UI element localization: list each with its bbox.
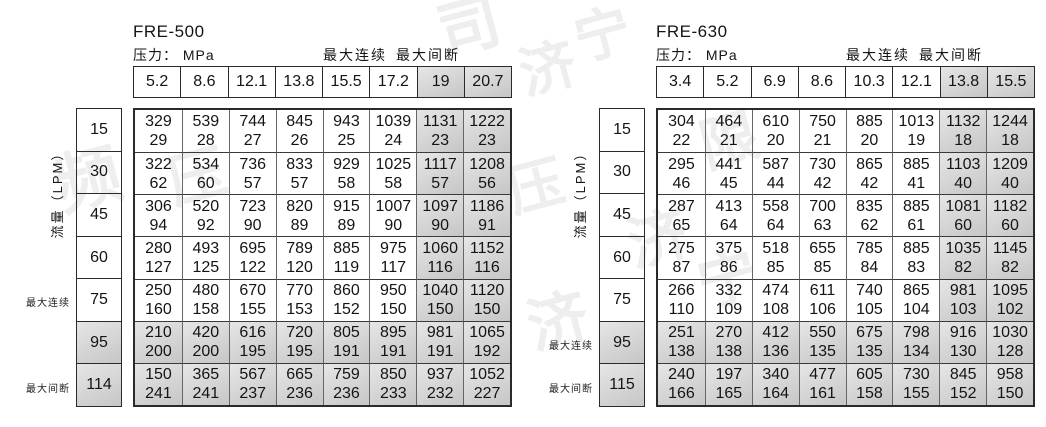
pressure-drop-value: 152 bbox=[333, 300, 360, 319]
pressure-drop-value: 86 bbox=[720, 258, 738, 277]
data-cell: 1152116 bbox=[463, 236, 510, 278]
pressure-unit-label: 压力： MPa bbox=[656, 45, 738, 65]
flow-value: 916 bbox=[950, 323, 977, 342]
pressure-drop-value: 64 bbox=[720, 216, 738, 235]
pressure-header-cell: 6.9 bbox=[751, 67, 798, 97]
data-cell: 84526 bbox=[276, 110, 323, 152]
flow-value: 865 bbox=[903, 281, 930, 300]
flow-value: 723 bbox=[239, 197, 266, 216]
data-cell: 100790 bbox=[369, 194, 416, 236]
data-cell: 950150 bbox=[369, 279, 416, 321]
data-cell: 88561 bbox=[892, 194, 939, 236]
flow-value: 1035 bbox=[945, 239, 981, 258]
flow-value: 1186 bbox=[470, 197, 504, 216]
flow-value: 1120 bbox=[470, 281, 504, 300]
flow-value: 820 bbox=[286, 197, 313, 216]
data-cell: 150241 bbox=[135, 363, 182, 405]
data-cell: 124418 bbox=[986, 110, 1033, 152]
data-cell: 65585 bbox=[799, 236, 846, 278]
data-cell: 916130 bbox=[939, 321, 986, 363]
pressure-drop-value: 94 bbox=[150, 216, 168, 235]
data-cell: 88583 bbox=[892, 236, 939, 278]
pressure-drop-value: 236 bbox=[286, 384, 313, 403]
data-cell: 611106 bbox=[799, 279, 846, 321]
pressure-drop-value: 40 bbox=[954, 174, 972, 193]
pressure-drop-value: 233 bbox=[380, 384, 407, 403]
pressure-drop-value: 44 bbox=[767, 174, 785, 193]
data-cell: 78584 bbox=[846, 236, 893, 278]
flow-value: 915 bbox=[333, 197, 360, 216]
pressure-drop-value: 119 bbox=[334, 258, 360, 277]
data-cell: 83357 bbox=[276, 152, 323, 194]
pressure-drop-value: 19 bbox=[907, 131, 925, 150]
flow-value: 744 bbox=[239, 112, 266, 131]
flow-value: 885 bbox=[903, 155, 930, 174]
flow-value: 833 bbox=[286, 155, 313, 174]
data-cell: 53928 bbox=[182, 110, 229, 152]
max-continuous-header-label: 最大连续 bbox=[323, 45, 387, 65]
flow-value: 981 bbox=[427, 323, 454, 342]
max-intermittent-header-label: 最大间断 bbox=[396, 45, 460, 65]
pressure-drop-value: 57 bbox=[244, 174, 262, 193]
flow-value: 1103 bbox=[946, 155, 980, 174]
flow-value: 280 bbox=[145, 239, 172, 258]
flow-value: 845 bbox=[286, 112, 313, 131]
pressure-drop-value: 120 bbox=[286, 258, 313, 277]
data-cell: 108160 bbox=[939, 194, 986, 236]
pressure-drop-value: 155 bbox=[903, 384, 930, 403]
pressure-drop-value: 65 bbox=[673, 216, 691, 235]
pressure-drop-value: 62 bbox=[150, 174, 168, 193]
pressure-drop-value: 138 bbox=[668, 342, 695, 361]
flow-value: 520 bbox=[192, 197, 219, 216]
pressure-header-cell: 20.7 bbox=[464, 67, 511, 97]
pressure-drop-value: 85 bbox=[767, 258, 785, 277]
data-cell: 114582 bbox=[986, 236, 1033, 278]
data-cell: 86542 bbox=[846, 152, 893, 194]
flow-header-cell: 30 bbox=[77, 151, 121, 194]
flow-value: 1013 bbox=[899, 112, 935, 131]
flow-value: 785 bbox=[856, 239, 883, 258]
flow-value: 981 bbox=[950, 281, 977, 300]
flow-value: 375 bbox=[715, 239, 742, 258]
flow-value: 885 bbox=[856, 112, 883, 131]
flow-value: 1039 bbox=[376, 112, 412, 131]
flow-value: 675 bbox=[856, 323, 883, 342]
data-cell: 70063 bbox=[799, 194, 846, 236]
pressure-drop-value: 192 bbox=[474, 342, 501, 361]
pressure-drop-value: 40 bbox=[1001, 174, 1019, 193]
data-cell: 109790 bbox=[416, 194, 463, 236]
data-cell: 332109 bbox=[705, 279, 752, 321]
flow-value: 534 bbox=[192, 155, 219, 174]
flow-header-cell: 95 bbox=[77, 321, 121, 364]
pressure-drop-value: 150 bbox=[380, 300, 407, 319]
data-cell: 1095102 bbox=[986, 279, 1033, 321]
data-cell: 113123 bbox=[416, 110, 463, 152]
flow-value: 860 bbox=[333, 281, 360, 300]
pressure-drop-value: 102 bbox=[997, 300, 1024, 319]
flow-value: 1025 bbox=[376, 155, 412, 174]
data-cell: 845152 bbox=[939, 363, 986, 405]
flow-value: 610 bbox=[762, 112, 789, 131]
flow-value: 332 bbox=[715, 281, 742, 300]
pressure-drop-value: 18 bbox=[1001, 131, 1019, 150]
pressure-drop-value: 82 bbox=[954, 258, 972, 277]
flow-value: 665 bbox=[286, 365, 313, 384]
flow-column: 153045607595114 bbox=[76, 108, 122, 407]
pressure-drop-value: 191 bbox=[380, 342, 407, 361]
pressure-drop-value: 27 bbox=[244, 131, 262, 150]
pressure-drop-value: 25 bbox=[338, 131, 356, 150]
pressure-drop-value: 150 bbox=[997, 384, 1024, 403]
flow-value: 1097 bbox=[422, 197, 458, 216]
max-intermittent-header-label: 最大间断 bbox=[919, 45, 983, 65]
flow-value: 150 bbox=[145, 365, 172, 384]
flow-value: 340 bbox=[762, 365, 789, 384]
flow-value: 1081 bbox=[945, 197, 981, 216]
pressure-drop-value: 161 bbox=[809, 384, 836, 403]
data-cell: 665236 bbox=[276, 363, 323, 405]
pressure-drop-value: 87 bbox=[673, 258, 691, 277]
pressure-drop-value: 46 bbox=[673, 174, 691, 193]
pressure-drop-value: 200 bbox=[145, 342, 172, 361]
pressure-drop-value: 85 bbox=[814, 258, 832, 277]
model-title: FRE-630 bbox=[656, 22, 728, 42]
flow-value: 275 bbox=[668, 239, 695, 258]
flow-value: 210 bbox=[145, 323, 172, 342]
data-cell: 73657 bbox=[229, 152, 276, 194]
flow-header-cell: 60 bbox=[600, 236, 644, 279]
data-cell: 240166 bbox=[658, 363, 705, 405]
flow-value: 670 bbox=[239, 281, 266, 300]
flow-header-cell: 45 bbox=[600, 193, 644, 236]
pressure-header-cell: 15.5 bbox=[987, 67, 1034, 97]
flow-value: 558 bbox=[762, 197, 789, 216]
data-cell: 695122 bbox=[229, 236, 276, 278]
pressure-drop-value: 166 bbox=[668, 384, 695, 403]
flow-value: 750 bbox=[809, 112, 836, 131]
pressure-drop-value: 117 bbox=[381, 258, 407, 277]
data-cell: 730155 bbox=[892, 363, 939, 405]
flow-value: 1152 bbox=[470, 239, 504, 258]
data-cell: 477161 bbox=[799, 363, 846, 405]
data-cell: 30694 bbox=[135, 194, 182, 236]
flow-header-cell: 75 bbox=[77, 278, 121, 321]
data-cell: 860152 bbox=[323, 279, 370, 321]
flow-value: 730 bbox=[903, 365, 930, 384]
flow-value: 700 bbox=[809, 197, 836, 216]
table-group-fre-500: FRE-500 压力： MPa 最大连续 最大间断 流量（LPM） 5.28.6… bbox=[0, 0, 523, 427]
data-cell: 113218 bbox=[939, 110, 986, 152]
data-cell: 88520 bbox=[846, 110, 893, 152]
data-cell: 41364 bbox=[705, 194, 752, 236]
max-continuous-header-label: 最大连续 bbox=[846, 45, 910, 65]
flow-value: 770 bbox=[286, 281, 313, 300]
data-cell: 103582 bbox=[939, 236, 986, 278]
pressure-header-cell: 8.6 bbox=[180, 67, 227, 97]
flow-value: 929 bbox=[333, 155, 360, 174]
flow-value: 611 bbox=[810, 281, 836, 300]
pressure-drop-value: 232 bbox=[427, 384, 454, 403]
flow-header-cell: 115 bbox=[600, 363, 644, 406]
pressure-drop-value: 110 bbox=[669, 300, 695, 319]
flow-value: 616 bbox=[239, 323, 266, 342]
pressure-drop-value: 61 bbox=[907, 216, 925, 235]
data-cell: 82089 bbox=[276, 194, 323, 236]
flow-value: 477 bbox=[809, 365, 836, 384]
flow-value: 885 bbox=[903, 239, 930, 258]
pressure-drop-value: 42 bbox=[861, 174, 879, 193]
pressure-header-cell: 15.5 bbox=[322, 67, 369, 97]
pressure-drop-value: 42 bbox=[814, 174, 832, 193]
pressure-drop-value: 125 bbox=[192, 258, 219, 277]
pressure-drop-value: 23 bbox=[478, 131, 496, 150]
flow-value: 365 bbox=[192, 365, 219, 384]
pressure-drop-value: 195 bbox=[286, 342, 313, 361]
pressure-drop-value: 29 bbox=[150, 131, 168, 150]
data-cell: 120940 bbox=[986, 152, 1033, 194]
pressure-drop-value: 150 bbox=[474, 300, 501, 319]
flow-value: 1030 bbox=[992, 323, 1028, 342]
flow-value: 937 bbox=[427, 365, 454, 384]
flow-header-cell: 45 bbox=[77, 193, 121, 236]
data-cell: 27587 bbox=[658, 236, 705, 278]
flow-value: 420 bbox=[192, 323, 219, 342]
pressure-drop-value: 122 bbox=[239, 258, 266, 277]
data-cell: 895191 bbox=[369, 321, 416, 363]
flow-value: 730 bbox=[809, 155, 836, 174]
data-cell: 29546 bbox=[658, 152, 705, 194]
flow-value: 1132 bbox=[946, 112, 980, 131]
pressure-header-row: 5.28.612.113.815.517.21920.7 bbox=[133, 66, 512, 98]
data-cell: 266110 bbox=[658, 279, 705, 321]
data-cell: 55864 bbox=[752, 194, 799, 236]
data-cell: 759236 bbox=[323, 363, 370, 405]
pressure-drop-value: 26 bbox=[291, 131, 309, 150]
catalog-table-page: 司宁济频压限压济宁济 FRE-500 压力： MPa 最大连续 最大间断 流量（… bbox=[0, 0, 1046, 427]
pressure-drop-value: 89 bbox=[291, 216, 309, 235]
pressure-drop-value: 134 bbox=[903, 342, 930, 361]
flow-value: 480 bbox=[192, 281, 219, 300]
data-cell: 250160 bbox=[135, 279, 182, 321]
flow-value: 805 bbox=[333, 323, 360, 342]
flow-value: 1208 bbox=[469, 155, 505, 174]
flow-value: 251 bbox=[668, 323, 695, 342]
flow-value: 587 bbox=[762, 155, 789, 174]
pressure-drop-value: 130 bbox=[950, 342, 977, 361]
flow-value: 740 bbox=[856, 281, 883, 300]
flow-value: 975 bbox=[380, 239, 407, 258]
data-cell: 550135 bbox=[799, 321, 846, 363]
pressure-drop-value: 58 bbox=[384, 174, 402, 193]
data-cell: 981103 bbox=[939, 279, 986, 321]
flow-value: 322 bbox=[145, 155, 172, 174]
pressure-drop-value: 90 bbox=[244, 216, 262, 235]
pressure-drop-value: 160 bbox=[145, 300, 172, 319]
data-cell: 28765 bbox=[658, 194, 705, 236]
data-cell: 30422 bbox=[658, 110, 705, 152]
pressure-drop-value: 41 bbox=[907, 174, 925, 193]
data-cell: 44145 bbox=[705, 152, 752, 194]
data-cell: 118260 bbox=[986, 194, 1033, 236]
data-cell: 1060116 bbox=[416, 236, 463, 278]
data-cell: 1065192 bbox=[463, 321, 510, 363]
pressure-drop-value: 64 bbox=[767, 216, 785, 235]
pressure-header-cell: 10.3 bbox=[845, 67, 892, 97]
pressure-drop-value: 28 bbox=[197, 131, 215, 150]
pressure-drop-value: 153 bbox=[286, 300, 313, 319]
flow-value: 958 bbox=[997, 365, 1024, 384]
data-cell: 981191 bbox=[416, 321, 463, 363]
pressure-drop-value: 116 bbox=[427, 258, 453, 277]
pressure-drop-value: 18 bbox=[954, 131, 972, 150]
pressure-drop-value: 56 bbox=[478, 174, 496, 193]
flow-value: 1131 bbox=[423, 112, 457, 131]
flow-header-cell: 60 bbox=[77, 236, 121, 279]
pressure-drop-value: 21 bbox=[720, 131, 738, 150]
pressure-drop-value: 91 bbox=[478, 216, 496, 235]
pressure-drop-value: 116 bbox=[474, 258, 500, 277]
pressure-header-cell: 5.2 bbox=[134, 67, 180, 97]
pressure-header-cell: 12.1 bbox=[892, 67, 939, 97]
flow-value: 1209 bbox=[992, 155, 1028, 174]
pressure-drop-value: 109 bbox=[715, 300, 742, 319]
pressure-drop-value: 136 bbox=[762, 342, 789, 361]
data-cell: 412136 bbox=[752, 321, 799, 363]
pressure-drop-value: 135 bbox=[809, 342, 836, 361]
flow-value: 474 bbox=[762, 281, 789, 300]
pressure-drop-value: 191 bbox=[333, 342, 360, 361]
data-cell: 32262 bbox=[135, 152, 182, 194]
flow-axis-label: 流量（LPM） bbox=[47, 144, 65, 240]
data-cell: 740105 bbox=[846, 279, 893, 321]
flow-value: 950 bbox=[380, 281, 407, 300]
data-cell: 605158 bbox=[846, 363, 893, 405]
pressure-drop-value: 21 bbox=[814, 131, 832, 150]
data-cell: 1052227 bbox=[463, 363, 510, 405]
flow-value: 759 bbox=[333, 365, 360, 384]
data-cell: 270138 bbox=[705, 321, 752, 363]
flow-value: 493 bbox=[192, 239, 219, 258]
data-cell: 75021 bbox=[799, 110, 846, 152]
data-cell: 1120150 bbox=[463, 279, 510, 321]
pressure-drop-value: 164 bbox=[762, 384, 789, 403]
data-cell: 975117 bbox=[369, 236, 416, 278]
flow-value: 550 bbox=[809, 323, 836, 342]
data-cell: 798134 bbox=[892, 321, 939, 363]
data-cell: 53460 bbox=[182, 152, 229, 194]
flow-value: 736 bbox=[239, 155, 266, 174]
row-side-label: 最大间断 bbox=[549, 380, 595, 395]
pressure-drop-value: 60 bbox=[197, 174, 215, 193]
data-cell: 37586 bbox=[705, 236, 752, 278]
pressure-drop-value: 135 bbox=[856, 342, 883, 361]
data-cell: 73042 bbox=[799, 152, 846, 194]
data-cell: 118691 bbox=[463, 194, 510, 236]
pressure-drop-value: 20 bbox=[861, 131, 879, 150]
row-side-label: 最大连续 bbox=[549, 337, 595, 352]
flow-value: 845 bbox=[950, 365, 977, 384]
data-cell: 120856 bbox=[463, 152, 510, 194]
pressure-drop-value: 128 bbox=[997, 342, 1024, 361]
flow-value: 539 bbox=[192, 112, 219, 131]
flow-value: 943 bbox=[333, 112, 360, 131]
row-side-label: 最大间断 bbox=[26, 380, 72, 395]
data-cell: 74427 bbox=[229, 110, 276, 152]
pressure-drop-value: 227 bbox=[474, 384, 501, 403]
pressure-header-cell: 13.8 bbox=[275, 67, 322, 97]
data-cell: 280127 bbox=[135, 236, 182, 278]
flow-header-cell: 15 bbox=[77, 109, 121, 151]
pressure-drop-value: 57 bbox=[291, 174, 309, 193]
model-title: FRE-500 bbox=[133, 22, 205, 42]
row-side-label: 最大连续 bbox=[26, 294, 72, 309]
pressure-drop-value: 103 bbox=[950, 300, 977, 319]
data-cell: 58744 bbox=[752, 152, 799, 194]
pressure-header-cell: 13.8 bbox=[940, 67, 987, 97]
flow-value: 895 bbox=[380, 323, 407, 342]
data-cell: 670155 bbox=[229, 279, 276, 321]
data-cell: 88541 bbox=[892, 152, 939, 194]
data-cell: 110340 bbox=[939, 152, 986, 194]
pressure-drop-value: 84 bbox=[861, 258, 879, 277]
data-cell: 210200 bbox=[135, 321, 182, 363]
data-cell: 52092 bbox=[182, 194, 229, 236]
data-cell: 1030128 bbox=[986, 321, 1033, 363]
flow-value: 518 bbox=[762, 239, 789, 258]
data-cell: 805191 bbox=[323, 321, 370, 363]
data-grid: 3292953928744278452694325103924113123122… bbox=[133, 108, 512, 407]
flow-value: 655 bbox=[809, 239, 836, 258]
pressure-drop-value: 138 bbox=[715, 342, 742, 361]
data-cell: 94325 bbox=[323, 110, 370, 152]
pressure-drop-value: 158 bbox=[856, 384, 883, 403]
flow-value: 1060 bbox=[422, 239, 458, 258]
flow-value: 885 bbox=[903, 197, 930, 216]
flow-value: 413 bbox=[715, 197, 742, 216]
data-cell: 340164 bbox=[752, 363, 799, 405]
flow-column: 153045607595115 bbox=[599, 108, 645, 407]
pressure-drop-value: 127 bbox=[145, 258, 172, 277]
flow-value: 1145 bbox=[993, 239, 1027, 258]
data-cell: 770153 bbox=[276, 279, 323, 321]
data-cell: 91589 bbox=[323, 194, 370, 236]
flow-value: 329 bbox=[145, 112, 172, 131]
flow-value: 250 bbox=[145, 281, 172, 300]
pressure-drop-value: 155 bbox=[239, 300, 266, 319]
flow-value: 270 bbox=[715, 323, 742, 342]
pressure-header-row: 3.45.26.98.610.312.113.815.5 bbox=[656, 66, 1035, 98]
pressure-drop-value: 62 bbox=[861, 216, 879, 235]
pressure-drop-value: 237 bbox=[239, 384, 266, 403]
data-cell: 83562 bbox=[846, 194, 893, 236]
pressure-drop-value: 150 bbox=[427, 300, 454, 319]
flow-value: 1065 bbox=[469, 323, 505, 342]
pressure-drop-value: 23 bbox=[431, 131, 449, 150]
flow-value: 412 bbox=[762, 323, 789, 342]
data-cell: 493125 bbox=[182, 236, 229, 278]
flow-value: 1117 bbox=[424, 155, 457, 174]
flow-value: 304 bbox=[668, 112, 695, 131]
pressure-drop-value: 152 bbox=[950, 384, 977, 403]
flow-value: 798 bbox=[903, 323, 930, 342]
data-cell: 1040150 bbox=[416, 279, 463, 321]
data-cell: 789120 bbox=[276, 236, 323, 278]
pressure-header-cell: 3.4 bbox=[657, 67, 703, 97]
flow-value: 835 bbox=[856, 197, 883, 216]
data-cell: 675135 bbox=[846, 321, 893, 363]
